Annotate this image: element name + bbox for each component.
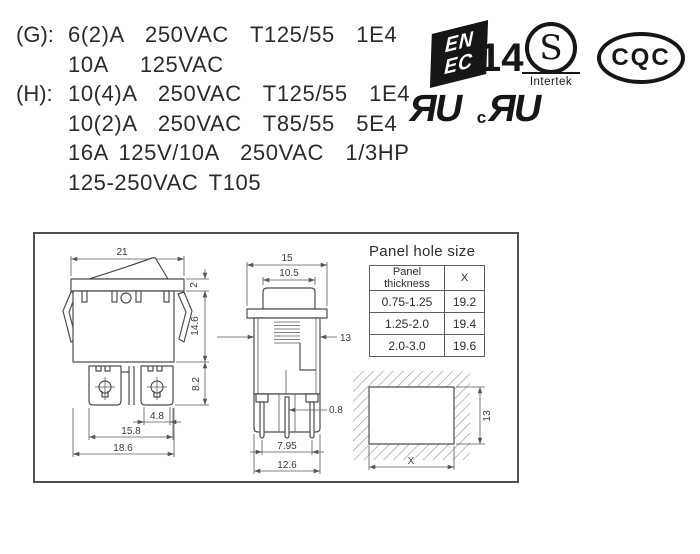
dim-hole-height: 13 — [482, 410, 493, 422]
ratings-block: (G):6(2)A 250VAC T125/55 1E4 10A 125VAC … — [16, 20, 410, 198]
drawing-panel: 21 — [33, 232, 519, 483]
cell-x: 19.6 — [445, 335, 485, 357]
panel-hole-size-block: Panel hole size Panel thickness X 0.75-1… — [369, 243, 485, 357]
col-header-x: X — [445, 266, 485, 291]
col-header-thickness: Panel thickness — [370, 266, 445, 291]
cell-thickness: 0.75-1.25 — [370, 291, 445, 313]
rating-line: 125-250VAC T105 — [16, 168, 410, 198]
side-view-drawing: 15 10.5 13 0.8 — [217, 253, 352, 474]
dim-side-pin: 0.8 — [329, 405, 343, 416]
rating-text: 10(2)A 250VAC T85/55 5E4 — [68, 111, 397, 136]
dim-hole-width: X — [408, 456, 415, 467]
dim-side-pinspan: 7.95 — [277, 441, 297, 452]
panel-table-title: Panel hole size — [369, 243, 485, 260]
table-row: 0.75-1.25 19.2 — [370, 291, 485, 313]
front-view-drawing: 21 — [63, 247, 209, 457]
rating-line: (H):10(4)A 250VAC T125/55 1E4 — [16, 79, 410, 109]
bezel — [71, 279, 184, 291]
ul-recognized-canada-icon: ЯU — [486, 90, 543, 128]
table-row: 1.25-2.0 19.4 — [370, 313, 485, 335]
rating-label-g: (G): — [16, 20, 68, 50]
rating-line: 10(2)A 250VAC T85/55 5E4 — [16, 109, 410, 139]
cqc-logo: CQC — [597, 32, 685, 84]
rating-text: 16A 125V/10A 250VAC 1/3HP — [68, 140, 410, 165]
rating-line: 16A 125V/10A 250VAC 1/3HP — [16, 138, 410, 168]
cqc-text: CQC — [611, 44, 670, 72]
dim-front-width: 21 — [116, 247, 128, 258]
panel-hole-table: Panel thickness X 0.75-1.25 19.2 1.25-2.… — [369, 265, 485, 357]
rating-text: 6(2)A 250VAC T125/55 1E4 — [68, 22, 397, 47]
rating-label-h: (H): — [16, 79, 68, 109]
intertek-name: Intertek — [522, 72, 580, 88]
panel-hole-drawing: 13 X — [353, 371, 493, 470]
panel-cutout — [369, 387, 454, 444]
intertek-logo: S Intertek — [522, 22, 580, 88]
ul-marks: ЯU c ЯU — [410, 90, 540, 128]
cell-thickness: 1.25-2.0 — [370, 313, 445, 335]
dim-front-base: 18.6 — [113, 443, 133, 454]
rating-text: 10A 125VAC — [68, 52, 224, 77]
table-header-row: Panel thickness X — [370, 266, 485, 291]
intertek-s-icon: S — [525, 22, 577, 74]
rocker-actuator — [89, 258, 168, 279]
actuator-side — [263, 288, 315, 309]
rating-text: 125-250VAC T105 — [68, 170, 261, 195]
cell-x: 19.4 — [445, 313, 485, 335]
dim-front-tab: 4.8 — [150, 411, 164, 422]
rib-lines — [274, 322, 300, 343]
dim-side-actuator: 10.5 — [279, 268, 299, 279]
dim-side-base: 12.6 — [277, 460, 297, 471]
rating-line: 10A 125VAC — [16, 50, 410, 80]
rating-line: (G):6(2)A 250VAC T125/55 1E4 — [16, 20, 410, 50]
ul-recognized-icon: ЯU — [407, 90, 464, 128]
pin-center — [285, 397, 289, 438]
rating-text: 10(4)A 250VAC T125/55 1E4 — [68, 81, 410, 106]
cell-x: 19.2 — [445, 291, 485, 313]
dim-front-body: 14.6 — [190, 316, 201, 336]
dim-front-bezel: 2 — [189, 282, 200, 288]
dim-front-lugspan: 15.8 — [121, 426, 141, 437]
dim-side-body: 13 — [340, 333, 352, 344]
cell-thickness: 2.0-3.0 — [370, 335, 445, 357]
enec-number: 14 — [479, 36, 524, 81]
enec-logo: EN EC 14 — [427, 19, 522, 93]
pin-left — [260, 402, 264, 438]
pin-right — [310, 402, 314, 438]
enec-line2: EC — [444, 50, 474, 79]
pivot-hole — [121, 293, 131, 303]
ul-canada-c: c — [477, 109, 486, 126]
dim-front-term: 8.2 — [191, 377, 202, 391]
dim-side-width: 15 — [281, 253, 293, 264]
table-row: 2.0-3.0 19.6 — [370, 335, 485, 357]
flange-side — [247, 309, 327, 318]
